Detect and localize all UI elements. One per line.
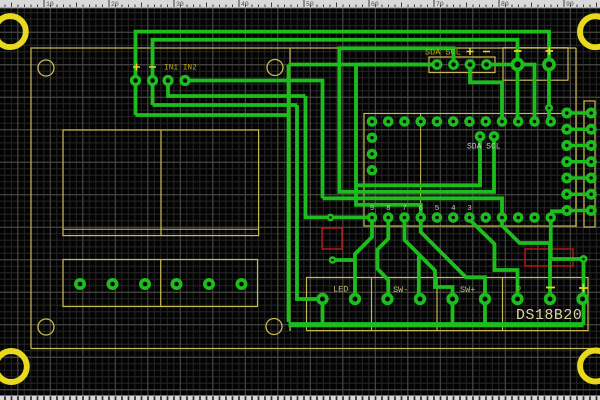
svg-text:60: 60 [371,1,379,8]
svg-text:20: 20 [111,1,119,8]
svg-text:SW+: SW+ [460,285,475,295]
svg-text:SW-: SW- [393,285,408,295]
svg-text:80: 80 [501,1,509,8]
svg-text:70: 70 [436,1,444,8]
svg-text:10: 10 [46,1,54,8]
svg-text:50: 50 [306,1,314,8]
svg-text:8: 8 [386,205,391,213]
svg-text:LED: LED [333,285,348,295]
svg-text:DS18B20: DS18B20 [516,308,582,324]
svg-text:SDA SCL: SDA SCL [425,48,461,58]
svg-text:30: 30 [176,1,184,8]
svg-text:D: D [517,286,522,294]
svg-text:IN1 IN2: IN1 IN2 [164,65,197,73]
svg-text:90: 90 [566,1,574,8]
svg-text:40: 40 [241,1,249,8]
svg-text:9: 9 [370,205,375,213]
svg-text:5: 5 [435,205,440,213]
svg-text:SDA SCL: SDA SCL [467,143,501,152]
svg-text:7: 7 [402,205,407,213]
svg-text:3: 3 [467,205,472,213]
svg-text:4: 4 [451,205,456,213]
svg-text:6: 6 [419,205,424,213]
